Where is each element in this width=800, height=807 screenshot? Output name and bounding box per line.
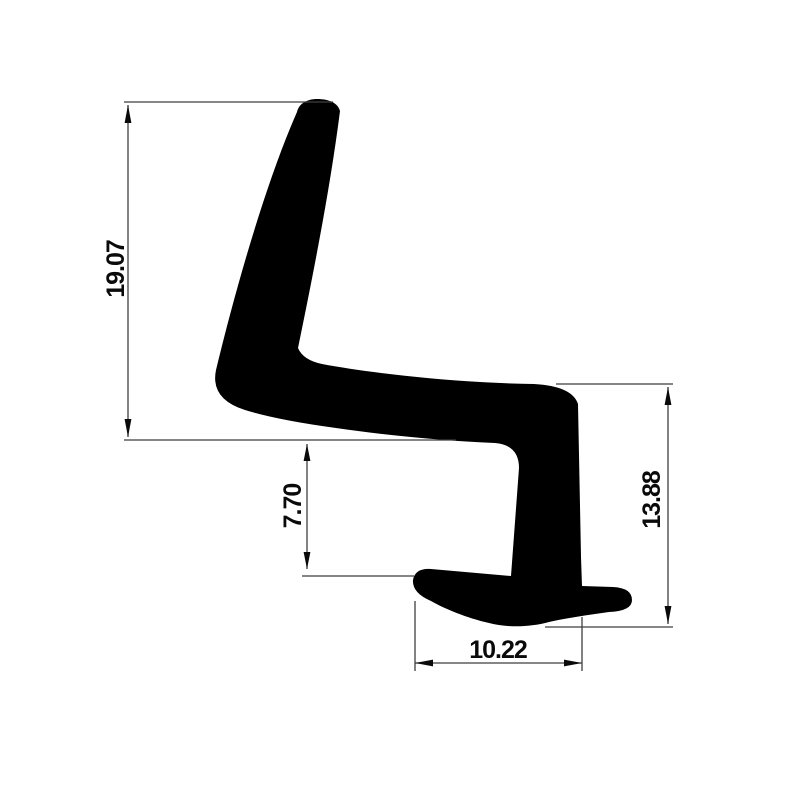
dimension-label-bottom-width: 10.22 xyxy=(469,636,527,664)
dimension-arrow-down xyxy=(125,419,132,437)
dimension-arrow-up xyxy=(665,387,672,405)
dimension-label-right-height: 13.88 xyxy=(638,470,666,529)
seal-profile-silhouette xyxy=(215,99,632,626)
dimension-inner-height: 7.70 xyxy=(279,444,414,576)
dimension-label-inner-height: 7.70 xyxy=(279,484,307,529)
dimension-arrow-left xyxy=(415,660,433,667)
dimension-arrow-down xyxy=(304,552,311,569)
dimension-arrow-up xyxy=(125,105,132,123)
dimension-arrow-right xyxy=(564,660,582,667)
profile-drawing-svg: 19.07 7.70 13.88 10.22 xyxy=(0,0,800,807)
dimension-arrow-up xyxy=(304,444,311,461)
technical-drawing-canvas: 19.07 7.70 13.88 10.22 xyxy=(0,0,800,807)
dimension-arrow-down xyxy=(665,606,672,624)
dimension-label-left-height: 19.07 xyxy=(102,240,130,298)
